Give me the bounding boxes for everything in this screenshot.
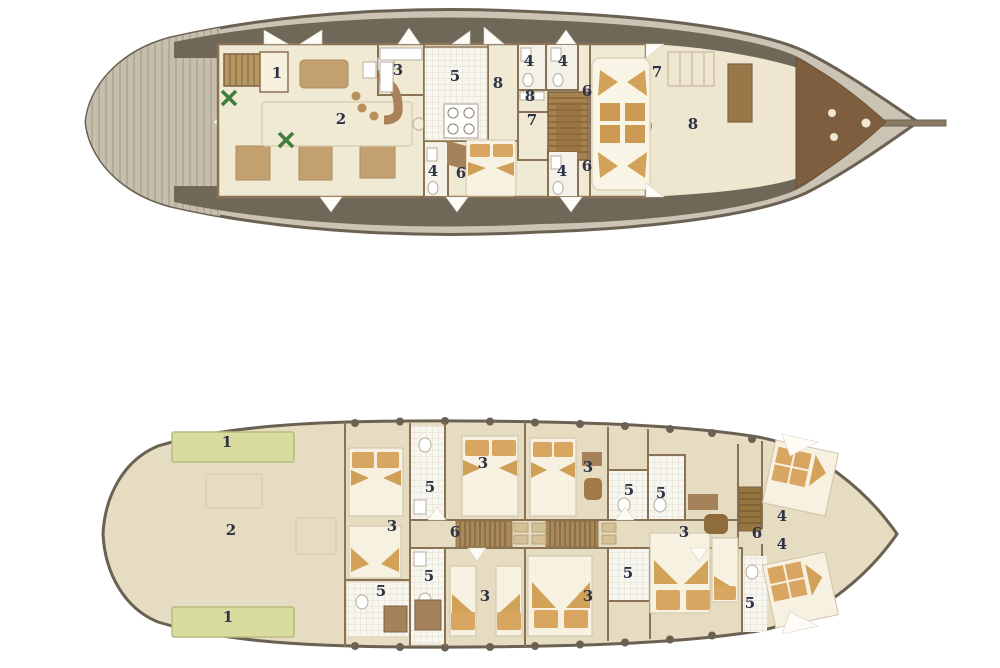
room-number-label: 7 <box>527 111 537 129</box>
room-number-label: 3 <box>583 458 593 476</box>
room-number-label: 3 <box>583 587 593 605</box>
room-number-label: 6 <box>450 523 460 541</box>
room-number-label: 8 <box>688 115 698 133</box>
room-number-label: 1 <box>222 433 232 451</box>
deck-plan-svg: 1235844867784646 <box>0 0 1000 668</box>
tank <box>172 432 294 462</box>
room-number-label: 2 <box>226 521 236 539</box>
room-number-label: 6 <box>582 157 592 175</box>
room-number-label: 3 <box>478 454 488 472</box>
room-number-label: 6 <box>456 164 466 182</box>
bowsprit-pole <box>876 120 946 126</box>
room-number-label: 5 <box>424 567 434 585</box>
room-number-label: 5 <box>745 594 755 612</box>
room-number-label: 5 <box>376 582 386 600</box>
room-number-label: 5 <box>656 484 666 502</box>
aft-open-deck <box>646 44 798 197</box>
room-number-label: 4 <box>557 162 567 180</box>
room-number-label: 3 <box>387 517 397 535</box>
room-number-label: 3 <box>679 523 689 541</box>
deck-fitting <box>862 119 871 128</box>
room-number-label: 1 <box>272 64 282 82</box>
room-number-label: 4 <box>777 507 787 525</box>
room-number-label: 7 <box>652 63 662 81</box>
kitchen <box>424 47 488 141</box>
room-number-label: 4 <box>558 52 568 70</box>
room-number-label: 8 <box>525 87 535 105</box>
deck-fitting <box>830 133 838 141</box>
aft-console <box>728 64 752 122</box>
mid-deck-planks <box>174 58 220 186</box>
room-number-label: 5 <box>425 478 435 496</box>
room-number-label: 6 <box>752 524 762 542</box>
upper-deck-plan: 1235844867784646 <box>84 8 946 236</box>
room-number-label: 4 <box>524 52 534 70</box>
deck-fitting <box>828 109 836 117</box>
room-number-label: 5 <box>623 564 633 582</box>
room-number-label: 2 <box>336 110 346 128</box>
room-number-label: 3 <box>393 61 403 79</box>
deck-plan-figure: 1235844867784646 <box>0 0 1000 668</box>
room-number-label: 4 <box>777 535 787 553</box>
room-number-label: 5 <box>624 481 634 499</box>
aft-dining-seating <box>592 58 650 190</box>
room-number-label: 5 <box>450 67 460 85</box>
room-number-label: 1 <box>223 608 233 626</box>
room-number-label: 4 <box>428 162 438 180</box>
lower-deck-plan: 12135355366443553535 <box>103 417 897 652</box>
room-number-label: 3 <box>480 587 490 605</box>
room-number-label: 8 <box>493 74 503 92</box>
room-number-label: 6 <box>582 82 592 100</box>
